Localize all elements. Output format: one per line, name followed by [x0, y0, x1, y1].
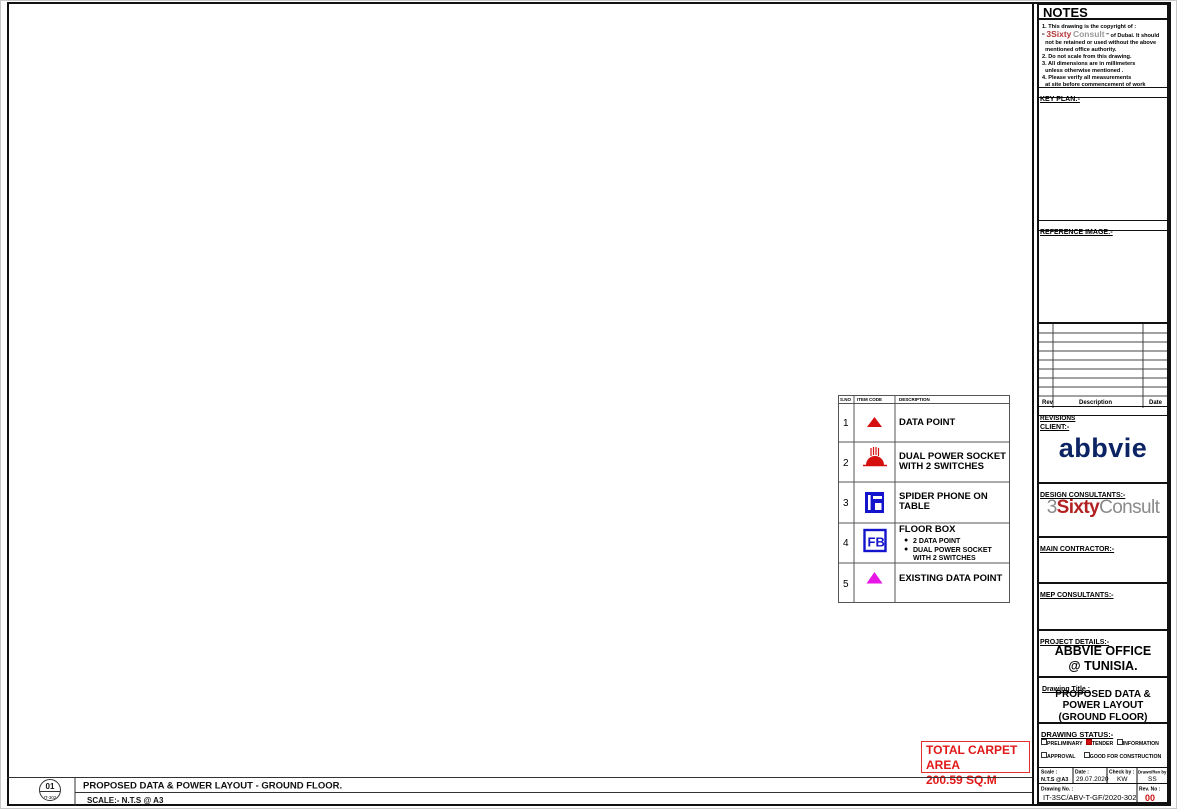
svg-text:Drawing No. :: Drawing No. :: [1041, 787, 1074, 793]
svg-text:Scale :: Scale :: [1041, 770, 1057, 776]
svg-text:ITEM CODE: ITEM CODE: [857, 397, 882, 402]
svg-text:IT-302: IT-302: [44, 795, 57, 800]
svg-text:00: 00: [1145, 793, 1155, 803]
svg-text:4: 4: [843, 538, 849, 549]
svg-text:PROPOSED DATA & POWER LAYOUT -: PROPOSED DATA & POWER LAYOUT - GROUND FL…: [83, 781, 342, 792]
svg-text:TABLE: TABLE: [899, 501, 930, 512]
svg-text:Date :: Date :: [1075, 770, 1089, 776]
svg-text:5: 5: [843, 579, 849, 590]
svg-text:FB: FB: [868, 535, 885, 550]
svg-text:KW: KW: [1117, 776, 1128, 783]
svg-text:WITH 2 SWITCHES: WITH 2 SWITCHES: [899, 461, 984, 472]
svg-text:SS: SS: [1148, 776, 1157, 783]
svg-text:Rev. No :: Rev. No :: [1139, 787, 1161, 793]
svg-text:Check by :: Check by :: [1109, 770, 1135, 776]
svg-text:Drawn/Rev by :: Drawn/Rev by :: [1138, 770, 1167, 775]
svg-text:EXISTING DATA POINT: EXISTING DATA POINT: [899, 573, 1002, 584]
svg-text:SCALE:- N.T.S @ A3: SCALE:- N.T.S @ A3: [87, 796, 164, 805]
svg-text:DUAL POWER SOCKET: DUAL POWER SOCKET: [913, 547, 993, 554]
svg-text:WITH 2 SWITCHES: WITH 2 SWITCHES: [913, 555, 976, 562]
svg-text:01: 01: [46, 782, 55, 791]
svg-text:FLOOR BOX: FLOOR BOX: [899, 524, 956, 535]
svg-text:1: 1: [843, 418, 849, 429]
svg-text:IT-3SC/ABV-T-GF/2020-302: IT-3SC/ABV-T-GF/2020-302: [1043, 793, 1136, 802]
svg-text:3: 3: [843, 498, 849, 509]
svg-text:DATA POINT: DATA POINT: [899, 417, 955, 428]
svg-text:●: ●: [904, 537, 908, 544]
svg-text:2: 2: [843, 458, 849, 469]
svg-text:DESCRIPTION: DESCRIPTION: [899, 397, 930, 402]
svg-text:29.07.2020: 29.07.2020: [1076, 776, 1109, 783]
svg-text:N.T.S @A3: N.T.S @A3: [1041, 777, 1068, 783]
svg-text:2 DATA POINT: 2 DATA POINT: [913, 538, 961, 545]
svg-text:S.NO: S.NO: [840, 397, 852, 402]
svg-text:●: ●: [904, 546, 908, 553]
